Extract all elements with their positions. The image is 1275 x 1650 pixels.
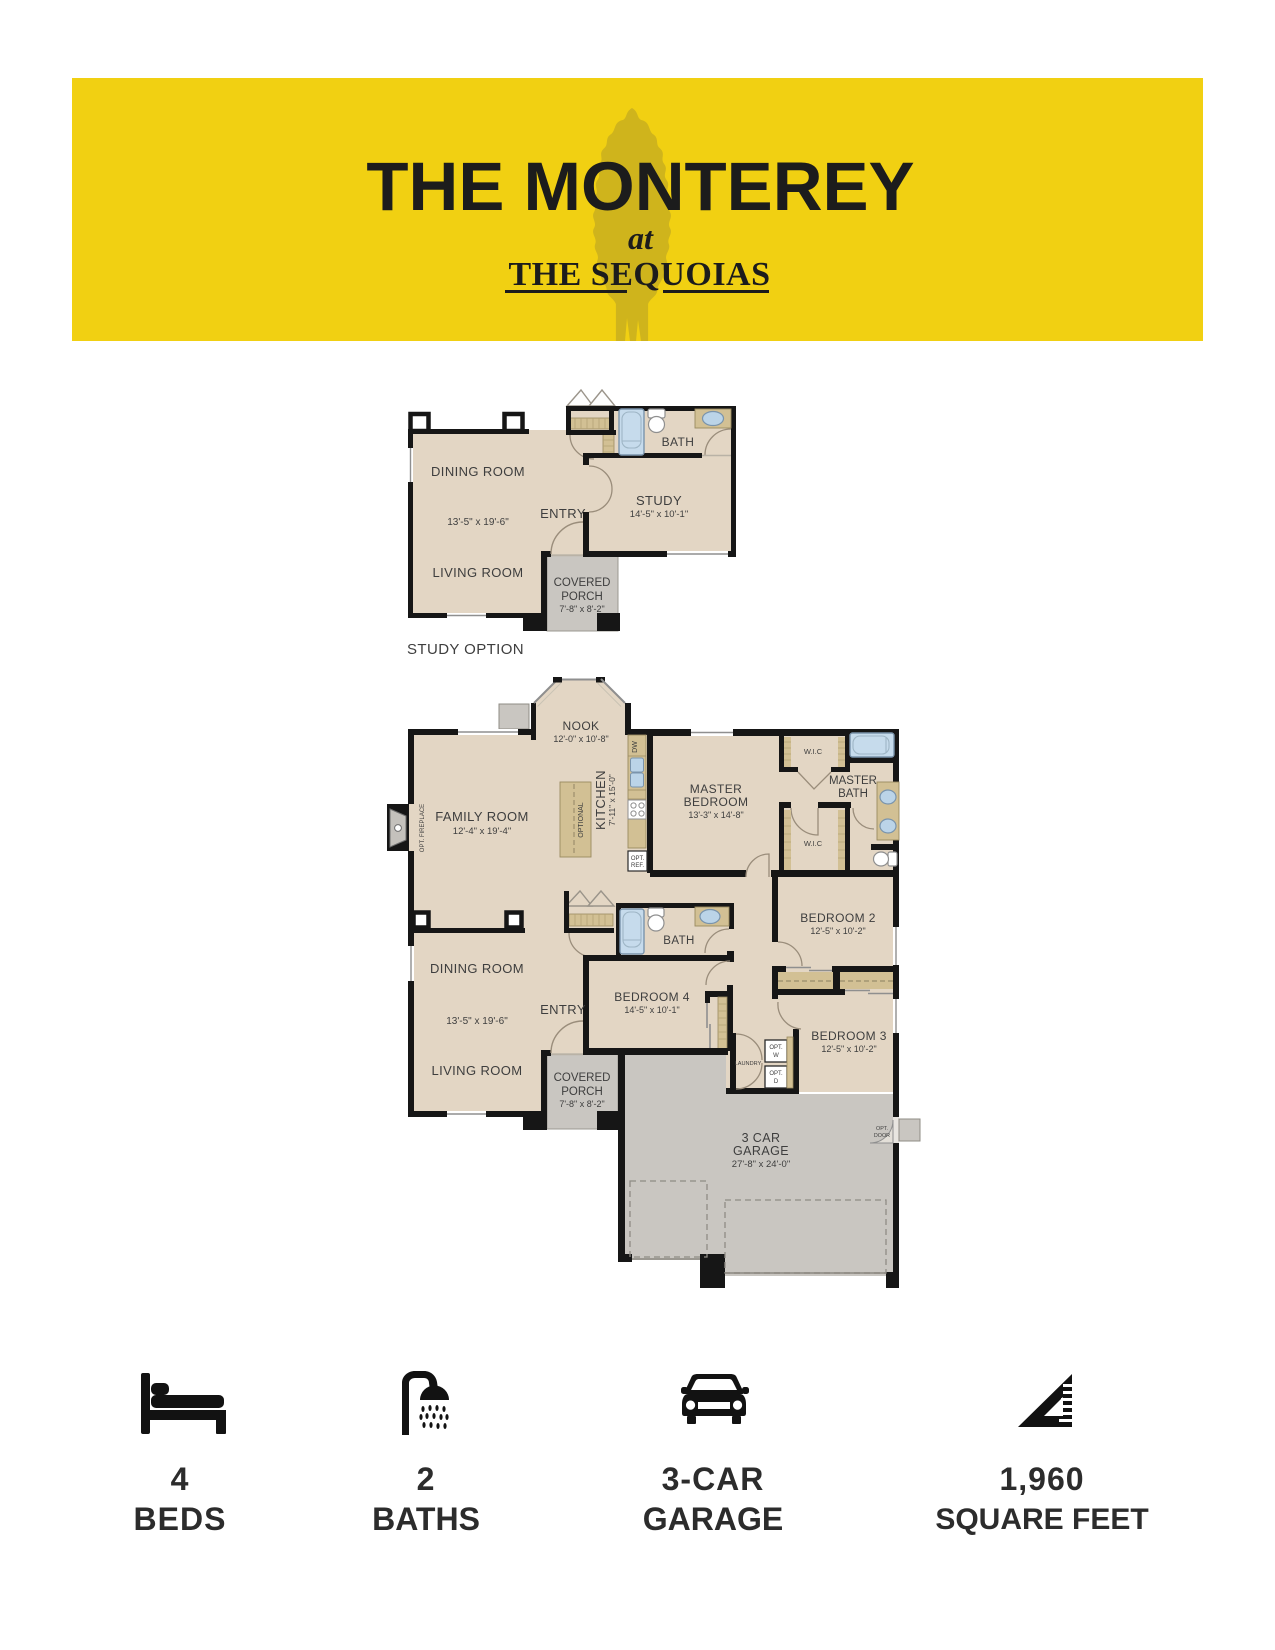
svg-text:PORCH: PORCH (561, 591, 603, 603)
svg-text:COVERED: COVERED (554, 1072, 611, 1084)
svg-text:STUDY: STUDY (636, 493, 682, 508)
svg-text:MASTER: MASTER (829, 775, 877, 787)
svg-text:BATH: BATH (838, 788, 868, 800)
svg-text:OPT.: OPT. (631, 856, 645, 862)
svg-text:13'-5" x 19'-6": 13'-5" x 19'-6" (447, 517, 509, 528)
svg-text:STUDY OPTION: STUDY OPTION (407, 641, 524, 658)
svg-text:D: D (774, 1079, 779, 1085)
svg-text:12'-5" x 10'-2": 12'-5" x 10'-2" (810, 926, 865, 936)
svg-text:FAMILY ROOM: FAMILY ROOM (435, 809, 529, 824)
svg-text:27'-8" x 24'-0": 27'-8" x 24'-0" (732, 1159, 790, 1170)
svg-text:DINING ROOM: DINING ROOM (431, 464, 525, 479)
svg-text:MASTER: MASTER (690, 782, 742, 796)
svg-text:13'-3" x 14'-8": 13'-3" x 14'-8" (688, 810, 743, 820)
svg-text:REF.: REF. (631, 863, 644, 869)
svg-text:COVERED: COVERED (554, 577, 611, 589)
svg-text:12'-0" x 10'-8": 12'-0" x 10'-8" (553, 734, 608, 744)
svg-text:LIVING ROOM: LIVING ROOM (432, 565, 523, 580)
svg-text:DINING ROOM: DINING ROOM (430, 961, 524, 976)
svg-text:W.I.C: W.I.C (804, 747, 823, 756)
svg-text:12'-5" x 10'-2": 12'-5" x 10'-2" (821, 1044, 876, 1054)
svg-text:DOOR: DOOR (874, 1133, 890, 1139)
svg-text:BEDROOM 4: BEDROOM 4 (614, 990, 690, 1004)
svg-text:PORCH: PORCH (561, 1086, 603, 1098)
svg-text:ENTRY: ENTRY (540, 1002, 586, 1017)
svg-text:OPTIONAL: OPTIONAL (578, 802, 585, 838)
svg-text:W.I.C: W.I.C (804, 839, 823, 848)
svg-text:7'-8" x 8'-2": 7'-8" x 8'-2" (559, 1099, 604, 1109)
svg-text:NOOK: NOOK (563, 719, 600, 733)
svg-text:BATH: BATH (663, 935, 694, 947)
svg-text:12'-4" x 19'-4": 12'-4" x 19'-4" (453, 826, 511, 837)
svg-text:7'-8" x 8'-2": 7'-8" x 8'-2" (559, 604, 604, 614)
svg-text:14'-5" x 10'-1": 14'-5" x 10'-1" (624, 1005, 679, 1015)
svg-text:LAUNDRY: LAUNDRY (735, 1061, 762, 1067)
svg-text:DW: DW (632, 741, 639, 753)
svg-text:W: W (773, 1053, 779, 1059)
svg-text:BEDROOM 3: BEDROOM 3 (811, 1029, 887, 1043)
svg-text:BEDROOM: BEDROOM (684, 795, 749, 809)
svg-text:LIVING ROOM: LIVING ROOM (431, 1063, 522, 1078)
svg-text:OPT.: OPT. (769, 1045, 783, 1051)
svg-text:OPT.: OPT. (769, 1071, 783, 1077)
svg-text:BEDROOM 2: BEDROOM 2 (800, 911, 876, 925)
svg-text:3 CAR: 3 CAR (742, 1131, 781, 1145)
svg-text:BATH: BATH (662, 435, 695, 449)
svg-text:ENTRY: ENTRY (540, 506, 586, 521)
svg-text:13'-5" x 19'-6": 13'-5" x 19'-6" (446, 1016, 508, 1027)
svg-text:KITCHEN: KITCHEN (593, 770, 608, 830)
svg-text:7'-11" x 15'-0": 7'-11" x 15'-0" (607, 774, 617, 826)
svg-text:OPT. FIREPLACE: OPT. FIREPLACE (420, 804, 426, 852)
svg-text:14'-5" x 10'-1": 14'-5" x 10'-1" (630, 509, 688, 520)
svg-text:GARAGE: GARAGE (733, 1144, 789, 1158)
svg-text:OPT.: OPT. (876, 1126, 888, 1132)
